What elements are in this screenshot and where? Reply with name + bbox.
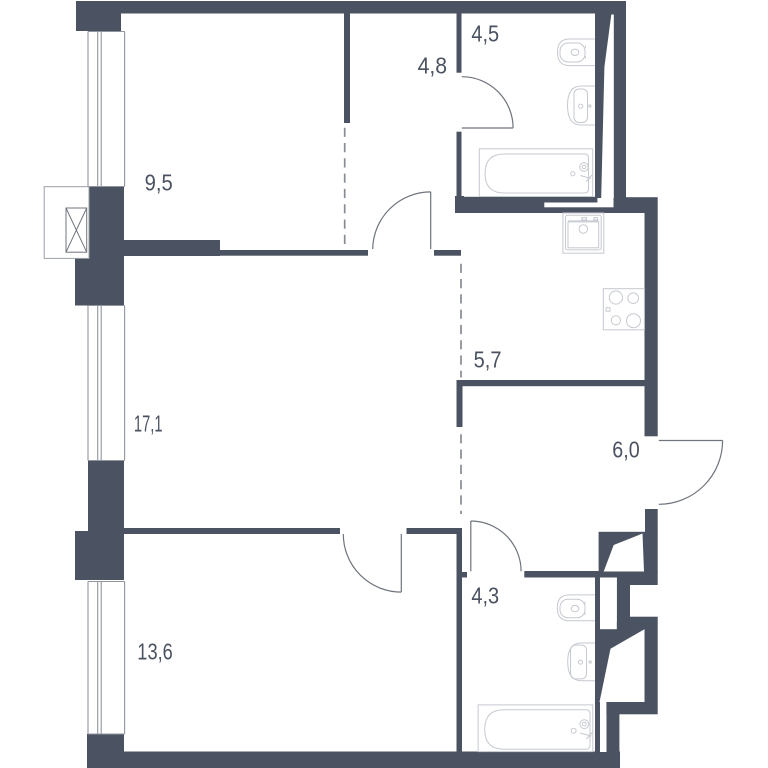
svg-text:17,1: 17,1	[134, 411, 163, 437]
svg-text:13,6: 13,6	[137, 639, 173, 665]
svg-text:9,5: 9,5	[145, 170, 173, 196]
svg-text:4,3: 4,3	[471, 582, 499, 608]
svg-text:4,5: 4,5	[471, 20, 499, 46]
svg-text:6,0: 6,0	[612, 437, 639, 463]
svg-text:5,7: 5,7	[474, 346, 502, 372]
svg-text:4,8: 4,8	[418, 53, 448, 79]
